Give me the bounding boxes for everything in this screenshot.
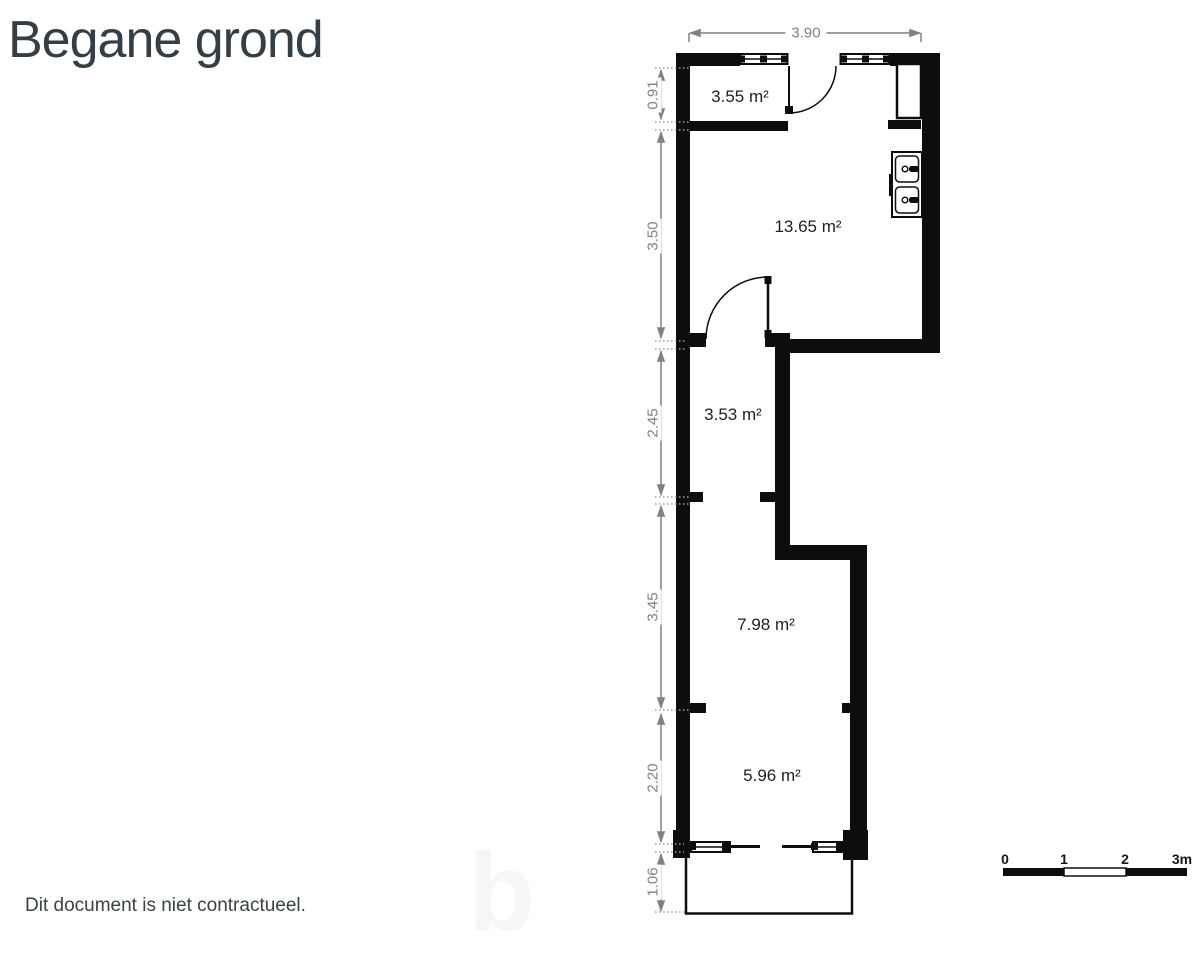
left-wall [676,53,690,858]
footer-disclaimer: Dit document is niet contractueel. [25,895,306,917]
room-bottom-wall-left [676,333,706,347]
window-icon-top-left [738,54,788,64]
page-title: Begane grond [8,10,323,70]
room-label-hall: 3.55 m² [711,87,769,107]
room-label-rear: 5.96 m² [743,766,801,786]
scale-label-1: 1 [1060,851,1068,867]
dim-left-6: 1.06 [645,864,662,899]
lower-section-top-wall [775,545,867,560]
bottom-corner-right [843,830,868,860]
scale-label-2: 2 [1121,851,1129,867]
dim-left-5: 2.20 [645,760,662,795]
double-sink-icon [891,152,923,217]
room-opening-stub-right [842,703,867,713]
room-bottom-wall-right [790,339,940,353]
right-wall-upper [922,53,940,353]
closet-icon [897,64,921,118]
room-opening-stub-left [690,703,706,713]
dim-left-3: 2.45 [645,405,662,440]
corridor-right-wall [775,347,790,560]
entry-hall-divider-right [888,120,921,129]
dim-left-4: 3.45 [645,589,662,624]
porch-outline [686,858,852,914]
entry-door-icon [785,66,836,114]
dim-left-1: 0.91 [645,77,662,112]
bottom-wall-thin-right [782,845,812,848]
room-label-corridor: 3.53 m² [704,405,762,425]
window-icon-bottom-right [811,842,844,852]
floor-plan-drawing [0,0,1200,954]
window-icon-bottom-left [689,842,730,852]
scale-label-3m: 3m [1172,851,1192,867]
room-label-middle: 7.98 m² [737,615,795,635]
corridor-opening-stub-left [690,492,703,502]
scale-label-0: 0 [1001,851,1009,867]
entry-hall-divider-left [676,121,788,131]
floor-plan-page: Begane grond Dit document is niet contra… [0,0,1200,954]
window-icon-top-right [840,54,890,64]
interior-door-icon [706,276,772,339]
corridor-opening-stub-right [760,492,775,502]
bottom-wall-thin-left [730,845,760,848]
watermark: b [468,838,535,948]
room-label-main: 13.65 m² [774,217,841,237]
dim-left-2: 3.50 [645,218,662,253]
scale-bar [1003,868,1187,876]
dim-top-width: 3.90 [785,25,826,42]
